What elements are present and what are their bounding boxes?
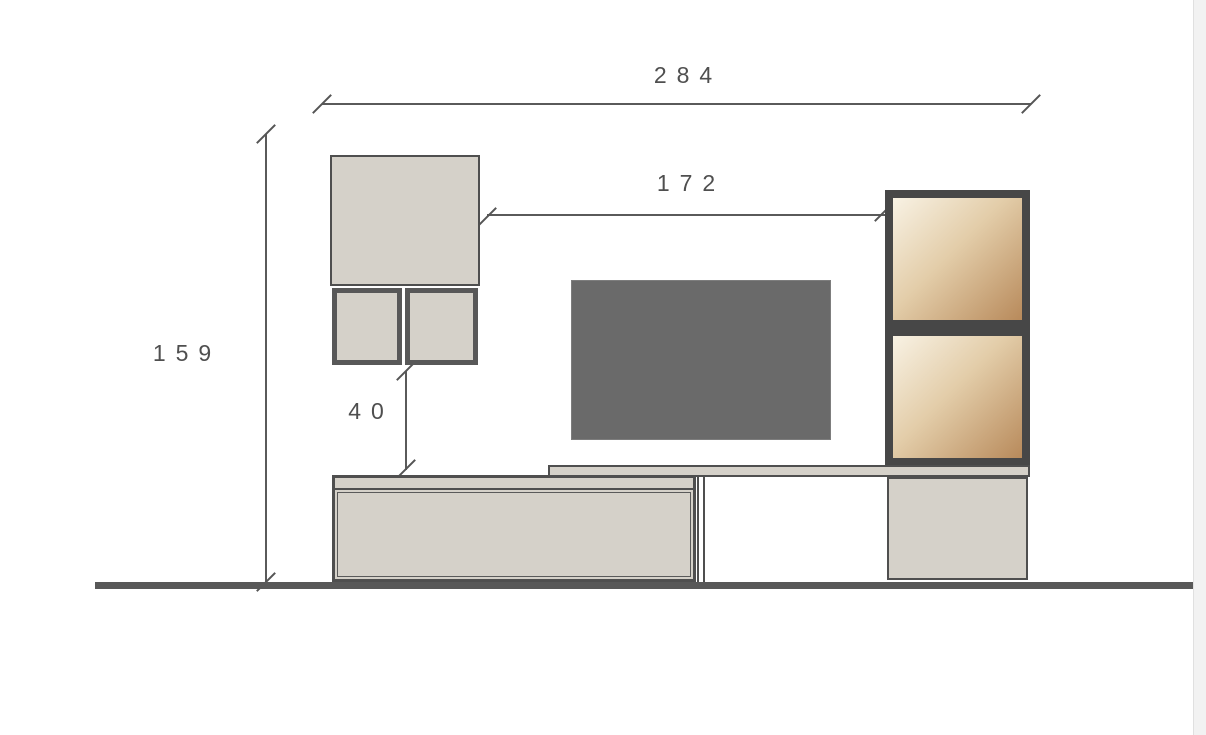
tv-screen: [571, 280, 831, 440]
floor-line: [95, 582, 1193, 589]
tall-unit-door-bottom: [885, 328, 1030, 466]
open-box-left: [332, 288, 402, 365]
dimension-upper-span-label: 172: [616, 170, 766, 197]
open-box-right: [405, 288, 478, 365]
dimension-overall-height-line: [265, 134, 267, 583]
tall-unit-door-top-glass: [893, 198, 1022, 320]
shelf-top: [548, 465, 1030, 477]
bench-cabinet: [332, 475, 696, 582]
page-edge-strip: [1193, 0, 1206, 735]
dimension-hang-gap-label: 40: [296, 398, 446, 425]
dimension-hang-gap-line: [405, 371, 407, 470]
base-cabinet-right: [887, 477, 1028, 580]
bench-rail-line: [335, 488, 693, 490]
dimension-upper-span-line: [487, 214, 885, 216]
elevation-drawing-canvas: 284 172 159 40: [0, 0, 1206, 735]
dimension-overall-width-line: [322, 103, 1031, 105]
tall-unit-door-top: [885, 190, 1030, 328]
wall-cabinet: [330, 155, 480, 286]
tall-unit-door-bottom-glass: [893, 336, 1022, 458]
dimension-overall-height-label: 159: [112, 340, 262, 367]
side-panel: [697, 477, 705, 582]
bench-front-panel: [337, 492, 691, 577]
dimension-overall-width-label: 284: [613, 62, 763, 89]
dimension-upper-span-tick-left: [477, 207, 497, 227]
